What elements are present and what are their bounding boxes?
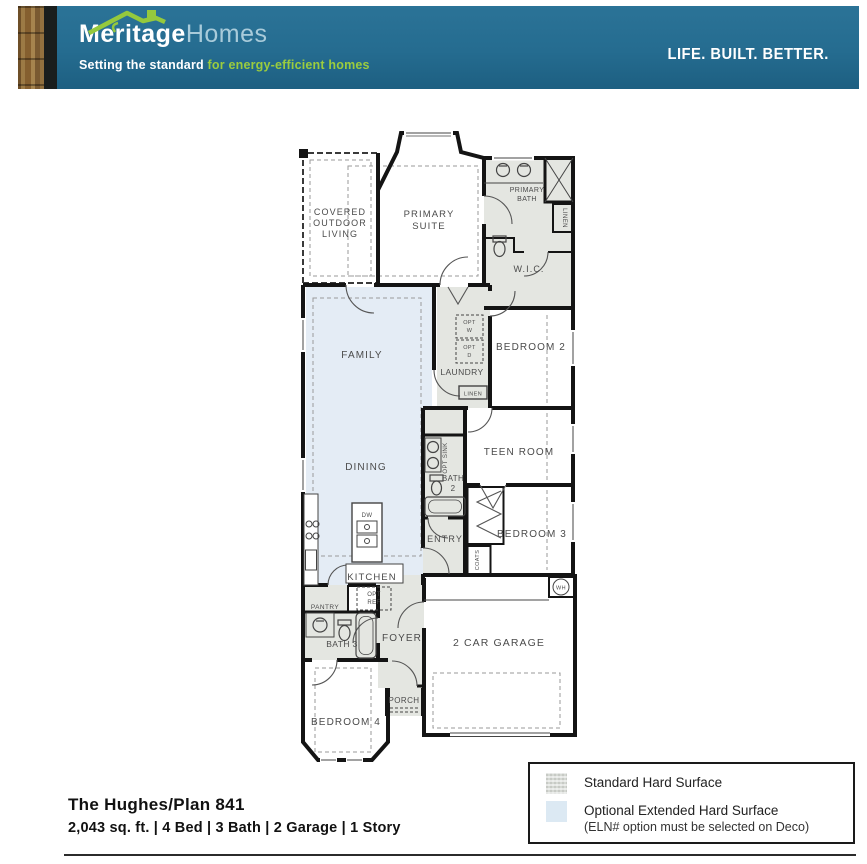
label-bedroom4: BEDROOM 4 [311,717,381,728]
label-teen-room: TEEN ROOM [484,447,554,458]
svg-text:2: 2 [451,484,456,493]
garage-details [424,600,550,737]
svg-text:BATH: BATH [517,196,537,203]
label-dishwasher: DW [362,513,373,519]
legend-row-standard: Standard Hard Surface [546,773,853,794]
bottom-rule [64,854,856,856]
label-pantry: PANTRY [311,604,339,611]
label-bath2: BATH [442,474,464,483]
banner-background: MeritageHomes Setting the standard for e… [57,6,859,89]
label-foyer: FOYER [382,633,422,644]
label-opt-sink: OPT SINK [443,442,449,473]
svg-text:LIVING: LIVING [322,229,358,239]
label-kitchen: KITCHEN [347,572,396,583]
label-water-heater: WH [556,586,566,592]
svg-text:REF: REF [367,600,380,606]
label-dining: DINING [345,462,387,473]
page: MeritageHomes Setting the standard for e… [0,0,867,864]
optional-surface-label: Optional Extended Hard Surface [584,801,809,820]
plan-specs: 2,043 sq. ft. | 4 Bed | 3 Bath | 2 Garag… [68,820,401,836]
label-porch: PORCH [389,696,420,705]
svg-text:W: W [467,328,473,334]
brand-banner: MeritageHomes Setting the standard for e… [18,6,859,89]
floor-plan-drawing: COVERED OUTDOOR LIVING PRIMARY SUITE PRI… [285,113,595,788]
tagline-green: for energy-efficient homes [208,58,370,72]
standard-surface-label: Standard Hard Surface [584,773,722,792]
label-entry: ENTRY [427,534,463,544]
optional-surface-swatch [546,801,567,822]
porch-post [299,149,308,158]
label-laundry: LAUNDRY [440,367,483,377]
meritage-logo: MeritageHomes [79,22,268,47]
label-garage: 2 CAR GARAGE [453,637,545,649]
label-linen-primary: LINEN [561,208,567,228]
label-primary-suite: PRIMARY [404,209,455,220]
black-divider-strip [44,6,57,89]
label-opt-ref: OPT [367,592,381,598]
label-bedroom3: BEDROOM 3 [497,529,567,540]
tagline: Setting the standard for energy-efficien… [79,58,370,72]
floor-plan: COVERED OUTDOOR LIVING PRIMARY SUITE PRI… [285,113,595,788]
svg-text:SUITE: SUITE [412,221,445,232]
legend-row-optional: Optional Extended Hard Surface (ELN# opt… [546,801,853,834]
plan-title: The Hughes/Plan 841 [68,795,245,815]
surface-legend: Standard Hard Surface Optional Extended … [528,762,855,844]
roof-icon [85,9,180,35]
wood-texture-strip [18,6,44,89]
label-primary-bath: PRIMARY [510,187,545,194]
label-wic: W.I.C. [513,264,544,274]
label-opt-washer: OPT [463,320,476,326]
svg-text:OUTDOOR: OUTDOOR [313,218,367,228]
brand-name-secondary: Homes [186,20,268,48]
label-covered-outdoor-living: COVERED [314,207,366,217]
tagline-bold: Setting the standard [79,58,204,72]
label-family: FAMILY [341,350,382,361]
optional-surface-note: (ELN# option must be selected on Deco) [584,820,809,834]
svg-text:D: D [467,353,471,359]
brand-slogan: LIFE. BUILT. BETTER. [668,46,829,64]
label-bath3: BATH 3 [326,639,358,649]
standard-surface-swatch [546,773,567,794]
label-coats: COATS [475,550,481,571]
label-bedroom2: BEDROOM 2 [496,342,566,353]
label-linen-hall: LINEN [464,392,482,398]
label-opt-dryer: OPT [463,345,476,351]
